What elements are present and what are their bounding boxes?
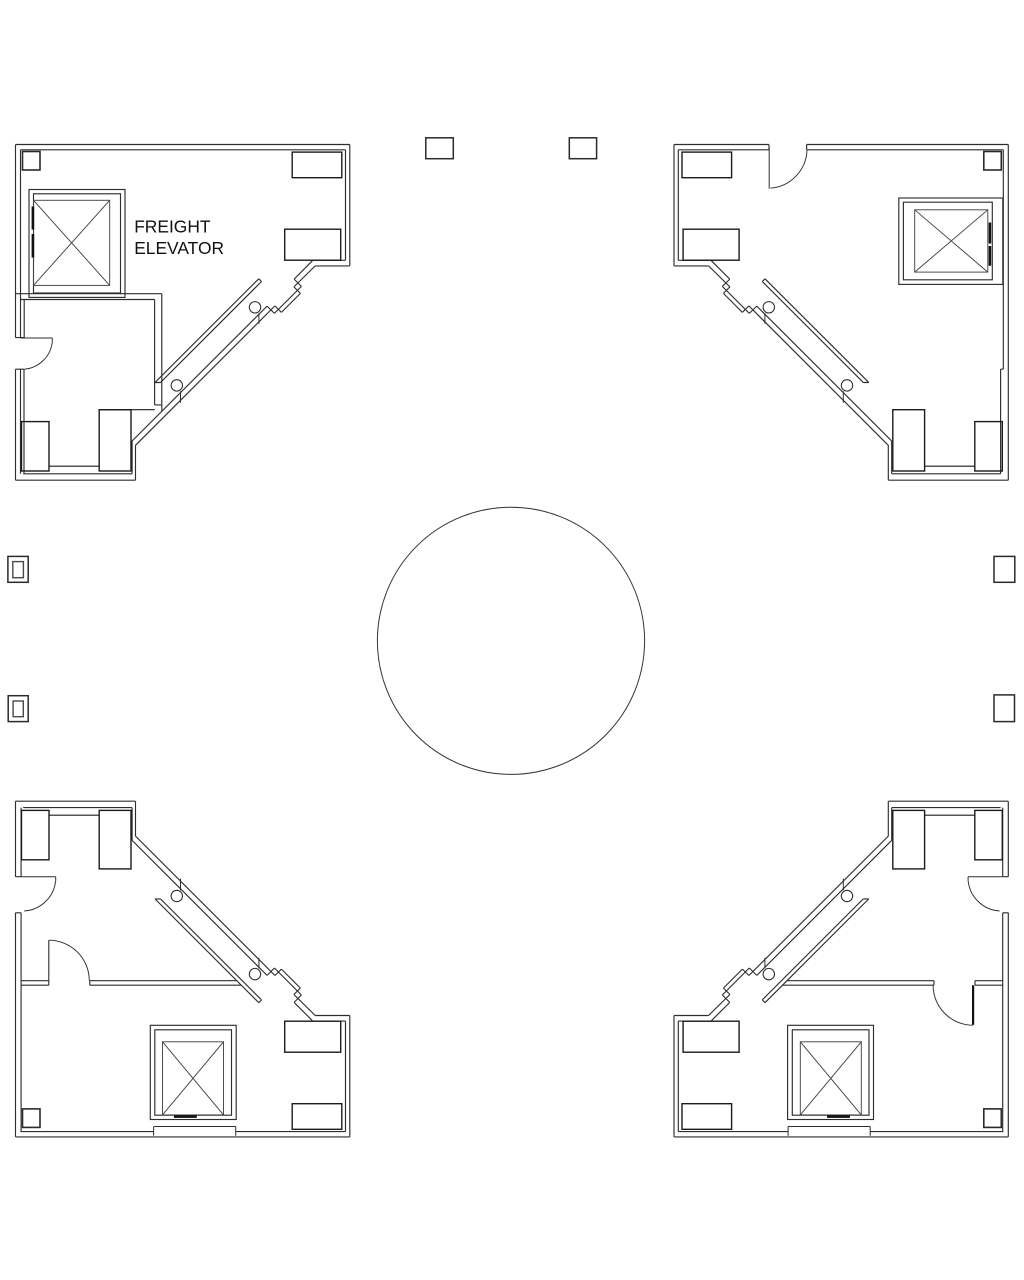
svg-text:ELEVATOR: ELEVATOR [134, 238, 224, 258]
svg-text:FREIGHT: FREIGHT [134, 216, 211, 236]
